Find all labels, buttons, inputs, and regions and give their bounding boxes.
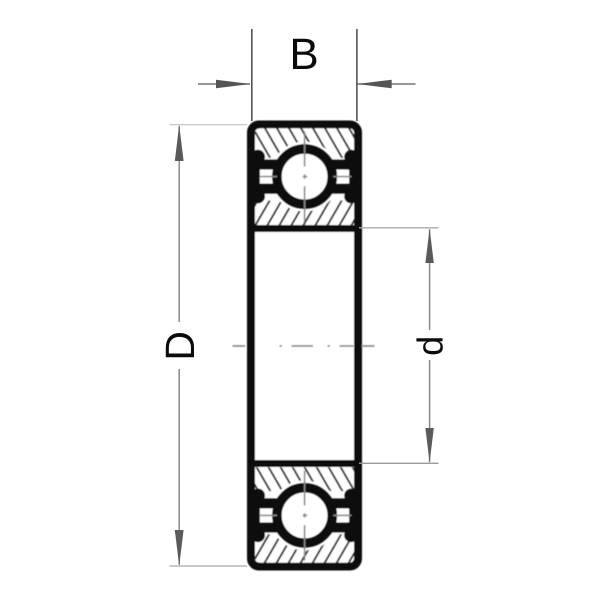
svg-text:B: B xyxy=(289,30,318,79)
svg-text:d: d xyxy=(409,336,450,356)
svg-text:D: D xyxy=(157,331,203,361)
